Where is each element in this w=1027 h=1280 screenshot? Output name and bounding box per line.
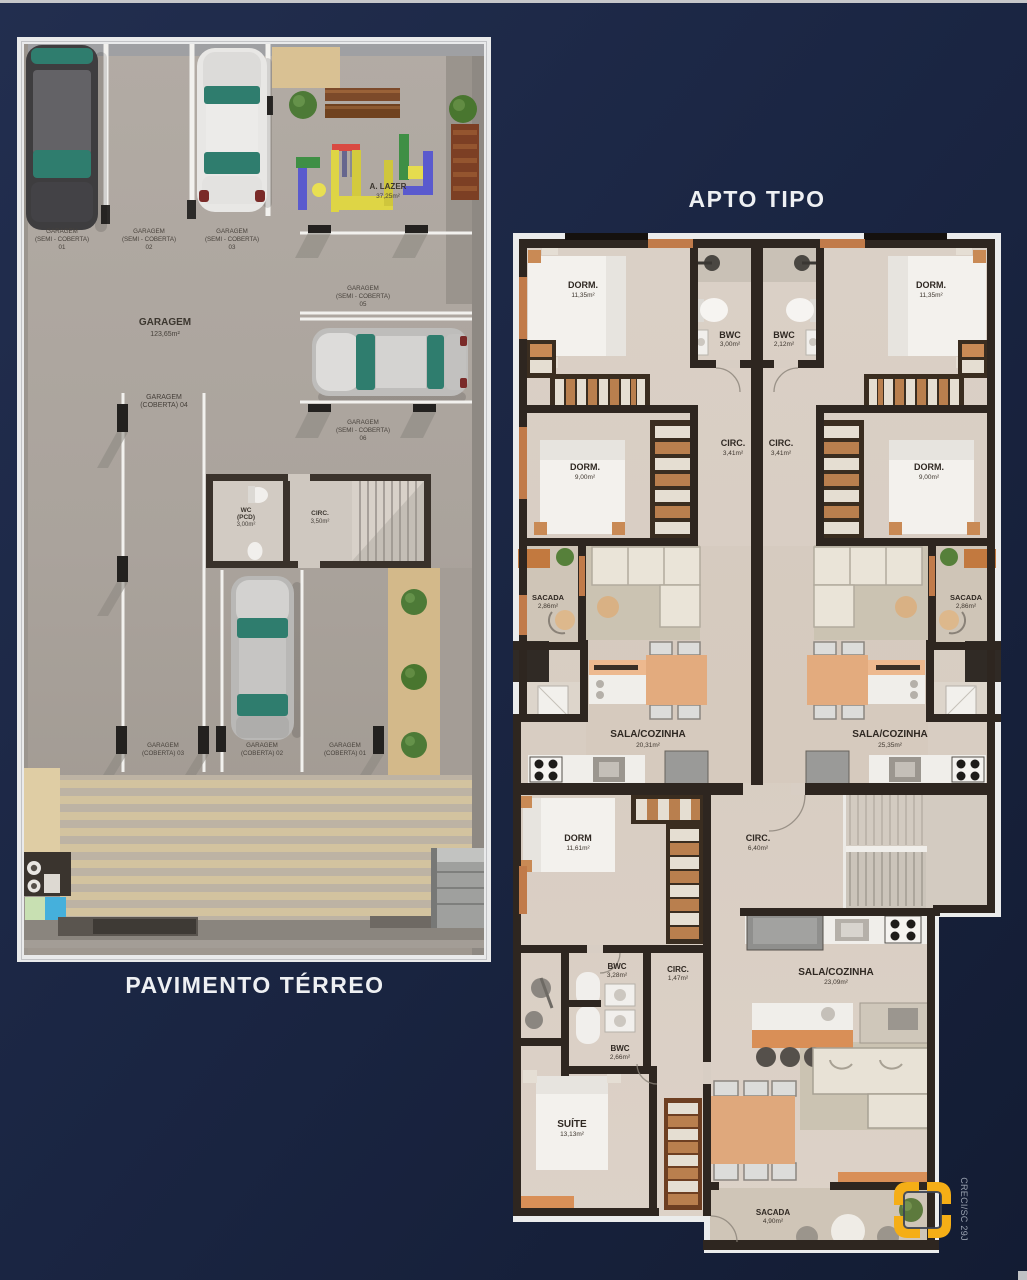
svg-text:3,50m²: 3,50m² bbox=[311, 519, 330, 525]
svg-text:(COBERTA) 02: (COBERTA) 02 bbox=[241, 750, 284, 757]
svg-text:6,40m²: 6,40m² bbox=[748, 845, 769, 852]
svg-text:9,00m²: 9,00m² bbox=[575, 474, 596, 481]
svg-text:BWC: BWC bbox=[773, 330, 795, 340]
svg-text:GARAGEM: GARAGEM bbox=[216, 228, 248, 235]
svg-text:(SEMI - COBERTA): (SEMI - COBERTA) bbox=[336, 293, 390, 300]
svg-text:SACADA: SACADA bbox=[950, 593, 983, 602]
svg-text:SACADA: SACADA bbox=[756, 1208, 790, 1217]
svg-text:(COBERTA) 01: (COBERTA) 01 bbox=[324, 750, 367, 757]
svg-text:(PCD): (PCD) bbox=[237, 514, 255, 521]
svg-text:1,47m²: 1,47m² bbox=[668, 975, 689, 982]
svg-text:3,00m²: 3,00m² bbox=[237, 522, 256, 528]
svg-text:BWC: BWC bbox=[607, 962, 626, 971]
svg-text:(SEMI - COBERTA): (SEMI - COBERTA) bbox=[336, 427, 390, 434]
svg-text:(COBERTA) 04: (COBERTA) 04 bbox=[140, 402, 188, 409]
svg-text:06: 06 bbox=[360, 435, 367, 442]
svg-text:DORM.: DORM. bbox=[570, 462, 600, 472]
svg-text:CIRC.: CIRC. bbox=[311, 510, 329, 517]
svg-text:3,00m²: 3,00m² bbox=[720, 341, 741, 348]
svg-text:2,66m²: 2,66m² bbox=[610, 1054, 631, 1061]
svg-text:CIRC.: CIRC. bbox=[769, 438, 794, 448]
svg-text:BWC: BWC bbox=[610, 1044, 629, 1053]
svg-text:A. LAZER: A. LAZER bbox=[370, 182, 407, 191]
svg-text:05: 05 bbox=[360, 301, 367, 308]
svg-text:DORM.: DORM. bbox=[916, 280, 946, 290]
svg-text:37,25m²: 37,25m² bbox=[376, 193, 401, 200]
svg-text:(SEMI - COBERTA): (SEMI - COBERTA) bbox=[35, 236, 89, 243]
svg-text:CIRC.: CIRC. bbox=[746, 833, 771, 843]
svg-text:20,31m²: 20,31m² bbox=[636, 742, 661, 749]
svg-text:GARAGEM: GARAGEM bbox=[246, 742, 278, 749]
svg-text:9,00m²: 9,00m² bbox=[919, 474, 940, 481]
svg-text:CIRC.: CIRC. bbox=[721, 438, 746, 448]
svg-text:123,65m²: 123,65m² bbox=[150, 331, 180, 338]
svg-text:(COBERTA) 03: (COBERTA) 03 bbox=[142, 750, 185, 757]
svg-text:3,41m²: 3,41m² bbox=[723, 450, 744, 457]
svg-text:SALA/COZINHA: SALA/COZINHA bbox=[798, 967, 874, 978]
svg-text:DORM.: DORM. bbox=[914, 462, 944, 472]
svg-text:(SEMI - COBERTA): (SEMI - COBERTA) bbox=[122, 236, 176, 243]
svg-text:11,35m²: 11,35m² bbox=[571, 292, 595, 299]
svg-text:APTO TIPO: APTO TIPO bbox=[688, 186, 825, 212]
svg-text:11,61m²: 11,61m² bbox=[566, 845, 590, 852]
svg-text:02: 02 bbox=[146, 244, 153, 251]
svg-text:BWC: BWC bbox=[719, 330, 741, 340]
svg-text:GARAGEM: GARAGEM bbox=[147, 742, 179, 749]
svg-text:WC: WC bbox=[241, 507, 252, 514]
svg-text:GARAGEM: GARAGEM bbox=[146, 394, 182, 401]
svg-text:SACADA: SACADA bbox=[532, 593, 565, 602]
svg-text:GARAGEM: GARAGEM bbox=[46, 228, 78, 235]
svg-text:25,35m²: 25,35m² bbox=[878, 742, 903, 749]
svg-text:DORM.: DORM. bbox=[568, 280, 598, 290]
svg-text:DORM: DORM bbox=[564, 833, 592, 843]
svg-text:11,35m²: 11,35m² bbox=[919, 292, 943, 299]
svg-text:SALA/COZINHA: SALA/COZINHA bbox=[852, 729, 928, 740]
svg-text:2,86m²: 2,86m² bbox=[538, 603, 559, 610]
svg-text:GARAGEM: GARAGEM bbox=[133, 228, 165, 235]
svg-text:2,86m²: 2,86m² bbox=[956, 603, 977, 610]
svg-text:CIRC.: CIRC. bbox=[667, 965, 689, 974]
svg-text:SUÍTE: SUÍTE bbox=[557, 1117, 587, 1130]
svg-text:PAVIMENTO TÉRREO: PAVIMENTO TÉRREO bbox=[125, 971, 384, 998]
svg-text:GARAGEM: GARAGEM bbox=[329, 742, 361, 749]
svg-text:GARAGEM: GARAGEM bbox=[139, 317, 191, 328]
svg-text:03: 03 bbox=[229, 244, 236, 251]
svg-text:13,13m²: 13,13m² bbox=[560, 1131, 585, 1138]
svg-text:23,09m²: 23,09m² bbox=[824, 979, 849, 986]
svg-text:3,28m²: 3,28m² bbox=[607, 972, 628, 979]
svg-text:4,90m²: 4,90m² bbox=[763, 1218, 784, 1225]
svg-text:2,12m²: 2,12m² bbox=[774, 341, 795, 348]
svg-text:GARAGEM: GARAGEM bbox=[347, 419, 379, 426]
svg-text:SALA/COZINHA: SALA/COZINHA bbox=[610, 729, 686, 740]
svg-text:(SEMI - COBERTA): (SEMI - COBERTA) bbox=[205, 236, 259, 243]
svg-text:3,41m²: 3,41m² bbox=[771, 450, 792, 457]
svg-text:CRECI/SC 29J: CRECI/SC 29J bbox=[959, 1177, 969, 1241]
svg-text:01: 01 bbox=[59, 244, 66, 251]
svg-text:GARAGEM: GARAGEM bbox=[347, 285, 379, 292]
